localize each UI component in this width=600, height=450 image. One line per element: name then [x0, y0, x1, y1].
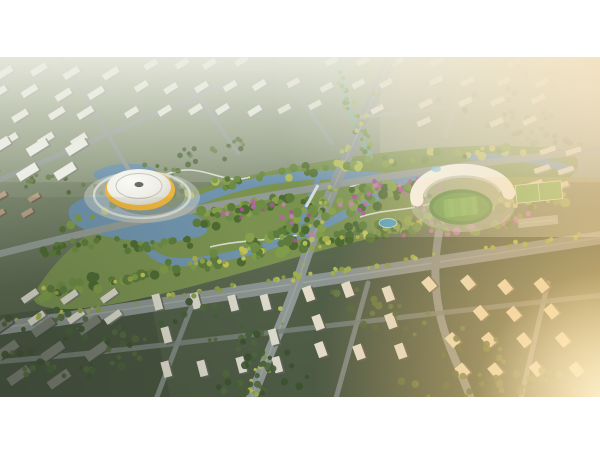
render-scene — [0, 57, 600, 397]
bottomleft-vignette — [0, 197, 300, 397]
letterboxed-canvas — [0, 0, 600, 450]
atmosphere-overlays — [0, 57, 600, 397]
sun-glow-core — [420, 257, 600, 397]
aerial-render-photo — [0, 57, 600, 397]
